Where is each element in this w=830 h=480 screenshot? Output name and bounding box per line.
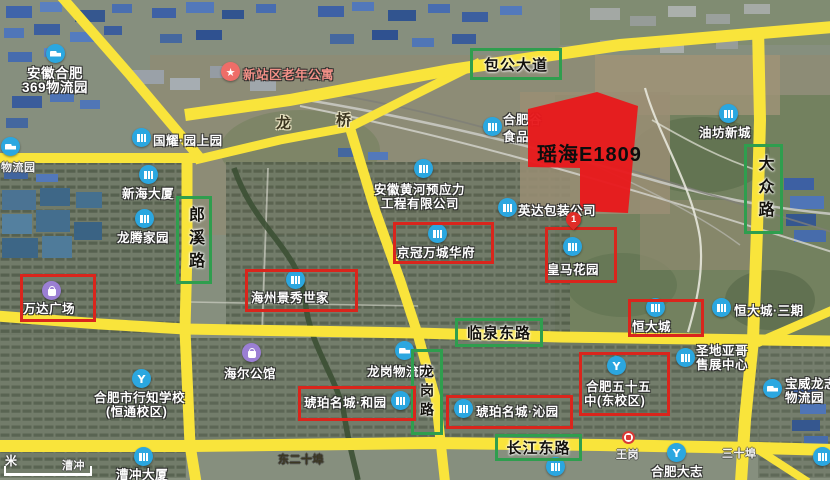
building-glyph — [551, 463, 560, 471]
building-glyph — [140, 215, 149, 223]
poi-anhui369-line2[interactable]: 369物流园 — [22, 76, 88, 96]
road-label-linquan-east-road[interactable]: 临泉东路 — [455, 318, 543, 347]
road-label-dazhong-road[interactable]: 大众路 — [744, 144, 783, 234]
bridge-name-right: 桥 — [336, 109, 351, 130]
poi-huanghe-line2[interactable]: 工程有限公司 — [381, 193, 459, 212]
building-glyph — [717, 304, 726, 312]
highlight-box-wanda — [20, 274, 96, 322]
shopping-bag-icon[interactable] — [242, 343, 261, 362]
road-label-text: 包公大道 — [484, 54, 548, 75]
building-icon[interactable] — [498, 198, 517, 217]
building-icon[interactable] — [676, 348, 695, 367]
road-label-text: 郎溪路 — [182, 206, 206, 275]
minor-label-dongershipu: 东二十埠 — [278, 451, 324, 467]
building-icon[interactable] — [139, 165, 158, 184]
highlight-box-hengdacheng — [628, 299, 704, 337]
minor-label-sanshipu: 三十埠 — [722, 445, 757, 461]
building-glyph — [724, 110, 733, 118]
building-glyph — [137, 134, 146, 142]
road-label-text: 长江东路 — [506, 437, 570, 458]
bag-glyph — [248, 351, 256, 358]
building-glyph — [419, 165, 428, 173]
building-glyph — [681, 354, 690, 362]
building-icon[interactable] — [719, 104, 738, 123]
poi-guoyao-label[interactable]: 国耀·园上园 — [153, 130, 223, 149]
poi-haier-label[interactable]: 海尔公馆 — [224, 363, 276, 382]
highlight-box-haizhou — [245, 269, 358, 312]
poi-dazhi-label[interactable]: 合肥大志 — [651, 461, 703, 480]
road-label-langxi-road[interactable]: 郎溪路 — [176, 196, 212, 284]
truck-glyph — [5, 144, 16, 150]
poi-caochongdasha-label[interactable]: 漕冲大厦 — [116, 464, 168, 480]
minor-label-wanggang: 王岗 — [616, 446, 639, 462]
parcel-label: 瑶海E1809 — [537, 138, 642, 167]
building-glyph — [503, 204, 512, 212]
school-glyph — [673, 444, 681, 462]
satellite-map[interactable]: 瑶海E1809 包公大道 郎溪路 大众路 临泉东路 龙岗路 长江东路 龙 桥 安… — [0, 0, 830, 480]
highlight-box-wushiwu — [579, 352, 670, 416]
truck-icon[interactable] — [46, 44, 65, 63]
building-icon[interactable] — [712, 298, 731, 317]
scale-bar — [4, 466, 92, 476]
building-icon[interactable] — [132, 128, 151, 147]
truck-glyph — [50, 51, 61, 57]
poi-youfang-label[interactable]: 油坊新城 — [699, 122, 751, 141]
poi-baowei-line2[interactable]: 物流园 — [785, 387, 824, 406]
truck-glyph — [767, 386, 778, 392]
poi-yingda-label[interactable]: 英达包装公司 — [518, 200, 596, 219]
truck-glyph — [399, 348, 410, 354]
road-label-text: 临泉东路 — [467, 322, 531, 343]
school-icon[interactable] — [667, 443, 686, 462]
school-glyph — [138, 370, 146, 388]
building-glyph — [818, 453, 827, 461]
road-label-changjiang-east-road[interactable]: 长江东路 — [495, 434, 582, 461]
building-icon[interactable] — [813, 447, 830, 466]
star-icon[interactable] — [221, 62, 240, 81]
building-glyph — [144, 171, 153, 179]
school-icon[interactable] — [132, 369, 151, 388]
road-label-text: 大众路 — [752, 155, 776, 224]
highlight-box-hupohe — [298, 386, 416, 421]
metro-station-icon[interactable] — [622, 431, 635, 444]
poi-xinhai-label[interactable]: 新海大厦 — [122, 183, 174, 202]
poi-xingzhi-line2[interactable]: (恒通校区) — [106, 401, 167, 420]
poi-xinzhan-label[interactable]: 新站区老年公寓 — [243, 64, 334, 83]
poi-hengda3-label[interactable]: 恒大城·三期 — [734, 300, 804, 319]
pin-number: 1 — [571, 214, 576, 225]
truck-icon[interactable] — [1, 137, 20, 156]
truck-icon[interactable] — [763, 379, 782, 398]
poi-shengdiyage-line2[interactable]: 售展中心 — [696, 354, 748, 373]
building-glyph — [139, 453, 148, 461]
bridge-name-left: 龙 — [276, 112, 291, 133]
road-label-text: 龙岗路 — [417, 364, 437, 421]
highlight-box-hupoqin — [446, 395, 573, 429]
highlight-box-huangma — [545, 227, 617, 283]
building-icon[interactable] — [135, 209, 154, 228]
star-glyph — [226, 63, 236, 81]
highlight-box-jingguan — [393, 222, 494, 264]
poi-wuliu-edge-label[interactable]: 物流园 — [1, 159, 36, 175]
road-label-baogong-avenue[interactable]: 包公大道 — [470, 48, 562, 80]
building-icon[interactable] — [414, 159, 433, 178]
poi-longteng-label[interactable]: 龙腾家园 — [117, 227, 169, 246]
